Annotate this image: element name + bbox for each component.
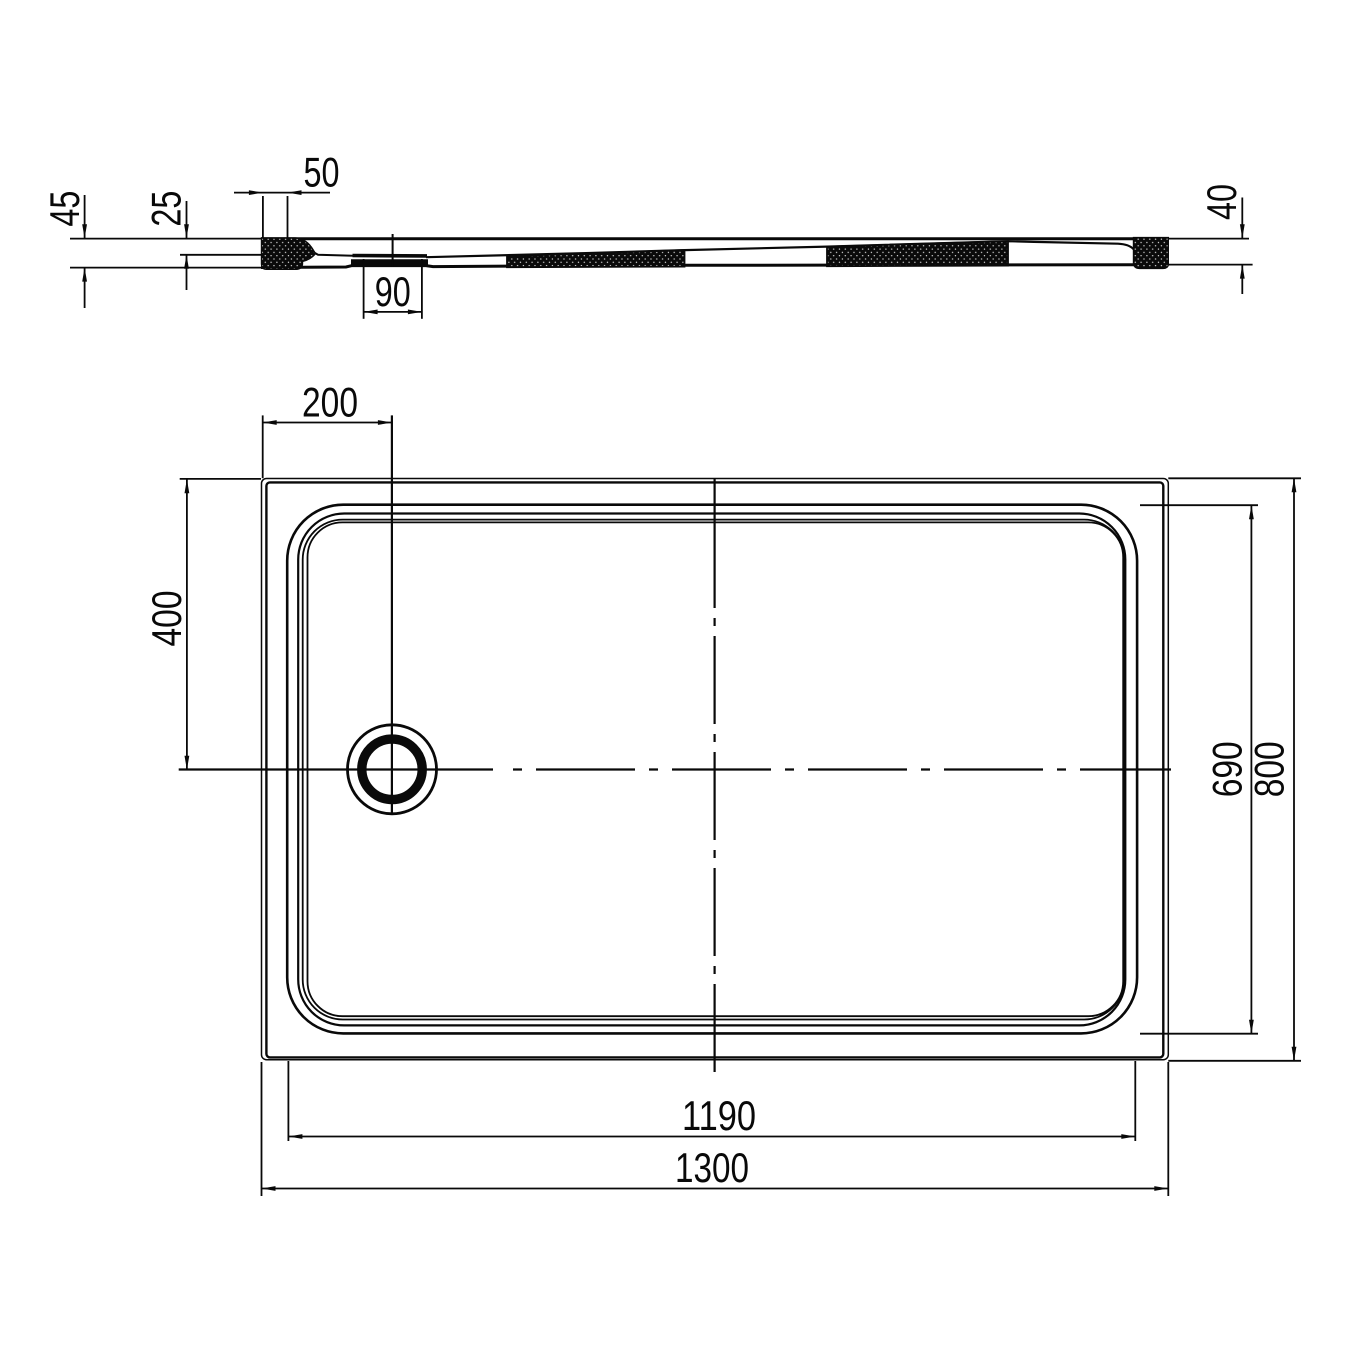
svg-text:200: 200: [302, 379, 358, 426]
svg-text:40: 40: [1198, 184, 1245, 220]
svg-text:90: 90: [375, 268, 411, 315]
svg-text:45: 45: [41, 191, 88, 227]
svg-text:50: 50: [304, 149, 340, 196]
svg-text:1300: 1300: [675, 1144, 749, 1191]
svg-text:400: 400: [143, 591, 190, 647]
svg-text:1190: 1190: [682, 1092, 756, 1139]
svg-text:800: 800: [1246, 741, 1293, 797]
svg-text:690: 690: [1204, 741, 1251, 797]
svg-text:25: 25: [142, 191, 189, 227]
